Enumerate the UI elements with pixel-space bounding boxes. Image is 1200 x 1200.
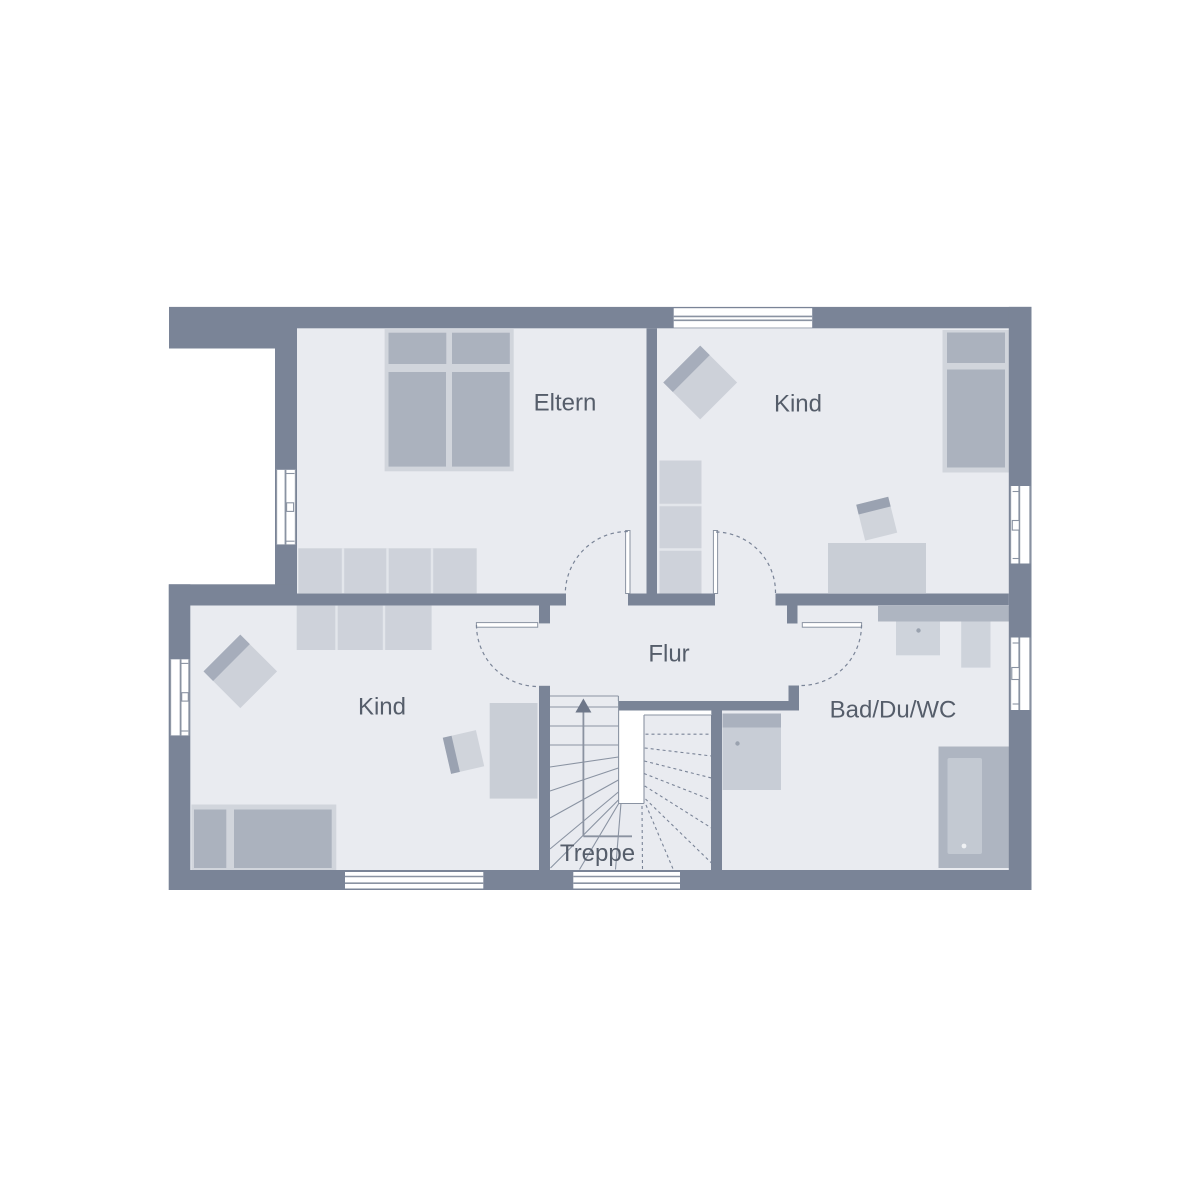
svg-text:Eltern: Eltern [534,390,597,417]
svg-text:Flur: Flur [648,641,689,668]
svg-text:Treppe: Treppe [560,840,635,867]
svg-text:Bad/Du/WC: Bad/Du/WC [830,697,957,724]
svg-text:Kind: Kind [774,391,822,418]
svg-text:Kind: Kind [358,694,406,721]
